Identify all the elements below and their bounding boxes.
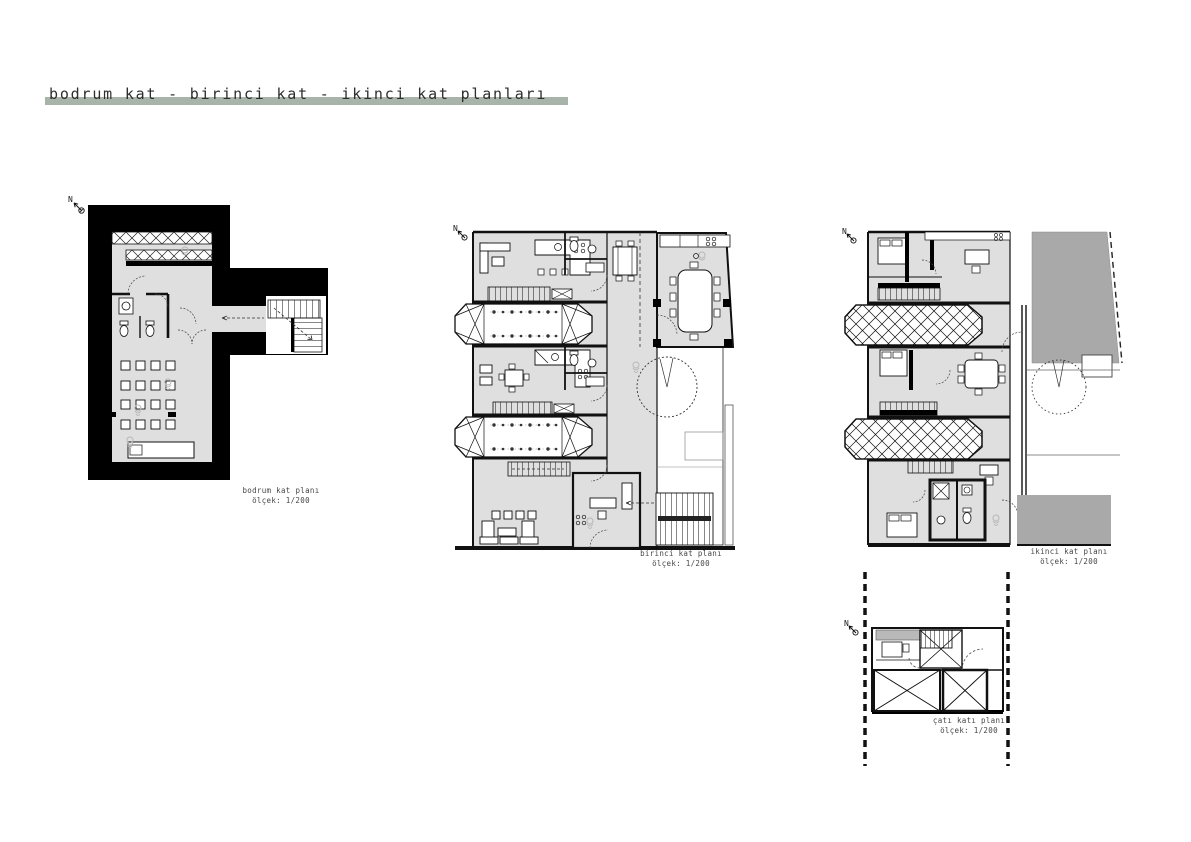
svg-text:N: N	[453, 224, 458, 233]
bay-window-upper	[455, 304, 592, 344]
plan-caption-bodrum: bodrum kat planı ölçek: 1/200	[206, 486, 356, 505]
page-title: bodrum kat - birinci kat - ikinci kat pl…	[49, 86, 547, 102]
plan-caption-scale: ölçek: 1/200	[894, 726, 1044, 736]
north-arrow-icon: N	[453, 224, 467, 240]
svg-text:N: N	[68, 195, 73, 204]
roof-stair	[920, 630, 962, 668]
bay-skylight-upper	[845, 305, 982, 345]
office-room-bottom	[573, 473, 640, 548]
plan-caption-name: birinci kat planı	[606, 549, 756, 559]
plan-caption-scale: ölçek: 1/200	[606, 559, 756, 569]
plan-caption-name: çatı katı planı	[894, 716, 1044, 726]
svg-text:N: N	[842, 227, 847, 236]
drawing-sheet: bodrum kat - birinci kat - ikinci kat pl…	[0, 0, 1191, 842]
roof-gray-top	[1032, 232, 1122, 377]
bay-window-lower	[455, 417, 592, 457]
floor-plan-birinci-kat: N	[440, 215, 760, 575]
floor-plan-bodrum-kat: N	[60, 190, 340, 510]
svg-text:N: N	[844, 619, 849, 628]
plan-caption-birinci: birinci kat planı ölçek: 1/200	[606, 549, 756, 568]
north-arrow-icon: N	[68, 195, 84, 213]
plan-caption-scale: ölçek: 1/200	[994, 557, 1144, 567]
plan-caption-ikinci: ikinci kat planı ölçek: 1/200	[994, 547, 1144, 566]
floor-plan-ikinci-kat: N	[830, 220, 1130, 570]
roof-terraces	[872, 670, 1003, 711]
plan-caption-name: ikinci kat planı	[994, 547, 1144, 557]
bay-skylight-lower	[845, 419, 982, 459]
plan-caption-scale: ölçek: 1/200	[206, 496, 356, 506]
north-arrow-icon: N	[844, 619, 858, 635]
north-arrow-icon: N	[842, 227, 856, 243]
plan-caption-cati: çatı katı planı ölçek: 1/200	[894, 716, 1044, 735]
floor-plan-cati-kati: N	[840, 570, 1030, 770]
plan-caption-name: bodrum kat planı	[206, 486, 356, 496]
